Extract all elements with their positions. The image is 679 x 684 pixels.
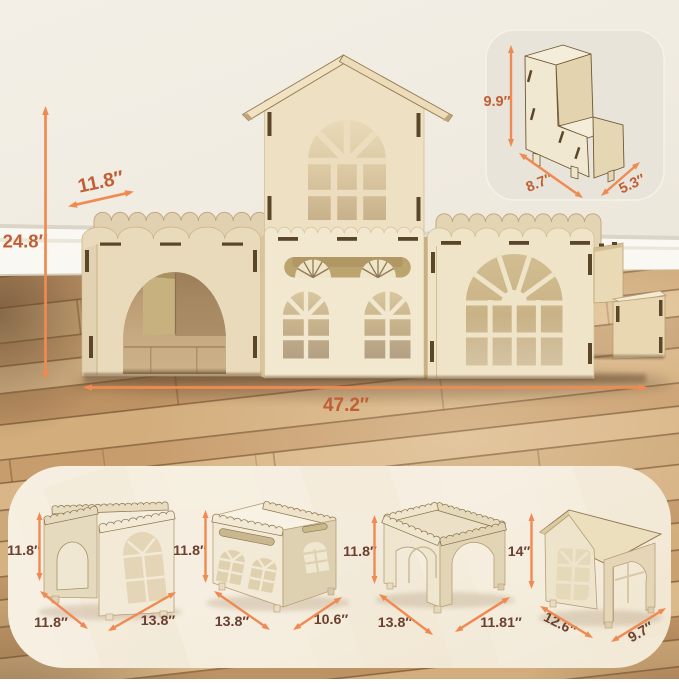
svg-text:11.8″: 11.8″ bbox=[343, 544, 377, 560]
svg-text:13.8″: 13.8″ bbox=[215, 614, 250, 630]
svg-text:11.8″: 11.8″ bbox=[7, 543, 41, 559]
svg-text:9.9″: 9.9″ bbox=[483, 94, 510, 110]
svg-text:11.81″: 11.81″ bbox=[480, 615, 522, 631]
svg-text:10.6″: 10.6″ bbox=[314, 612, 349, 628]
svg-text:47.2″: 47.2″ bbox=[323, 395, 369, 416]
svg-text:11.8″: 11.8″ bbox=[173, 543, 207, 559]
svg-text:24.8″: 24.8″ bbox=[3, 231, 48, 252]
svg-text:11.8″: 11.8″ bbox=[34, 615, 68, 631]
svg-text:14″: 14″ bbox=[508, 544, 531, 560]
svg-text:13.8″: 13.8″ bbox=[141, 613, 176, 629]
svg-text:13.8″: 13.8″ bbox=[378, 615, 413, 631]
